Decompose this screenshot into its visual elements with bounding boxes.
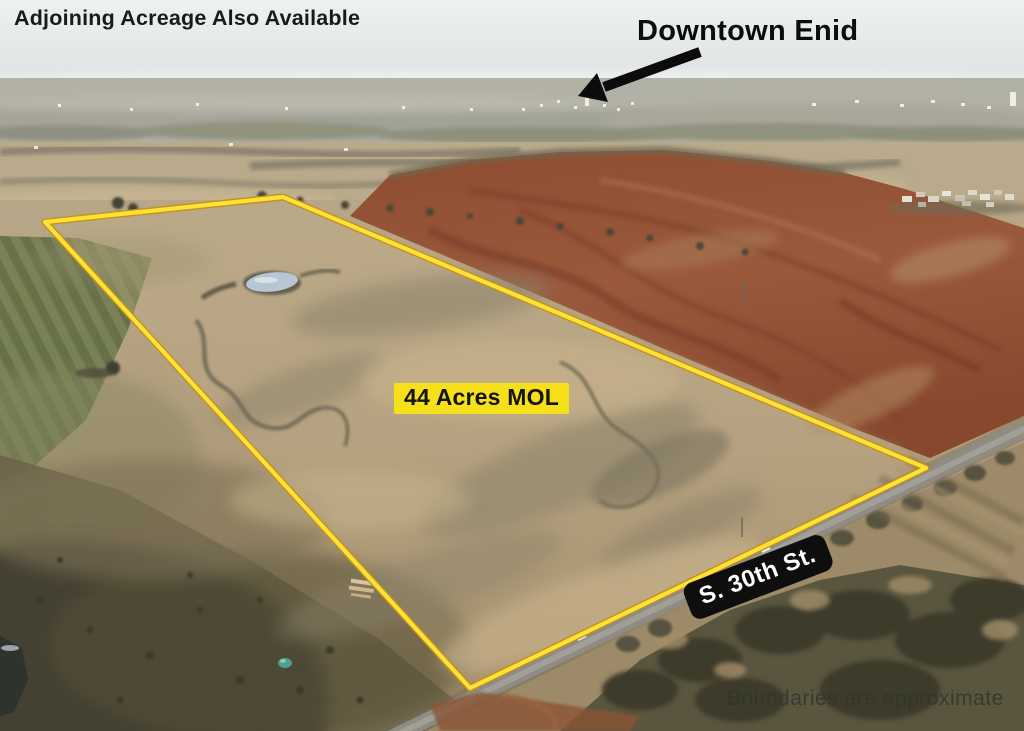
boundary-disclaimer: Boundaries are approximate — [727, 687, 1004, 711]
city-skyline — [0, 78, 1024, 146]
downtown-enid-label: Downtown Enid — [637, 15, 858, 48]
aerial-photo-background — [0, 0, 1024, 731]
acreage-label: 44 Acres MOL — [394, 383, 569, 414]
adjoining-acreage-note: Adjoining Acreage Also Available — [14, 6, 360, 31]
aerial-listing-photo: Adjoining Acreage Also Available Downtow… — [0, 0, 1024, 731]
